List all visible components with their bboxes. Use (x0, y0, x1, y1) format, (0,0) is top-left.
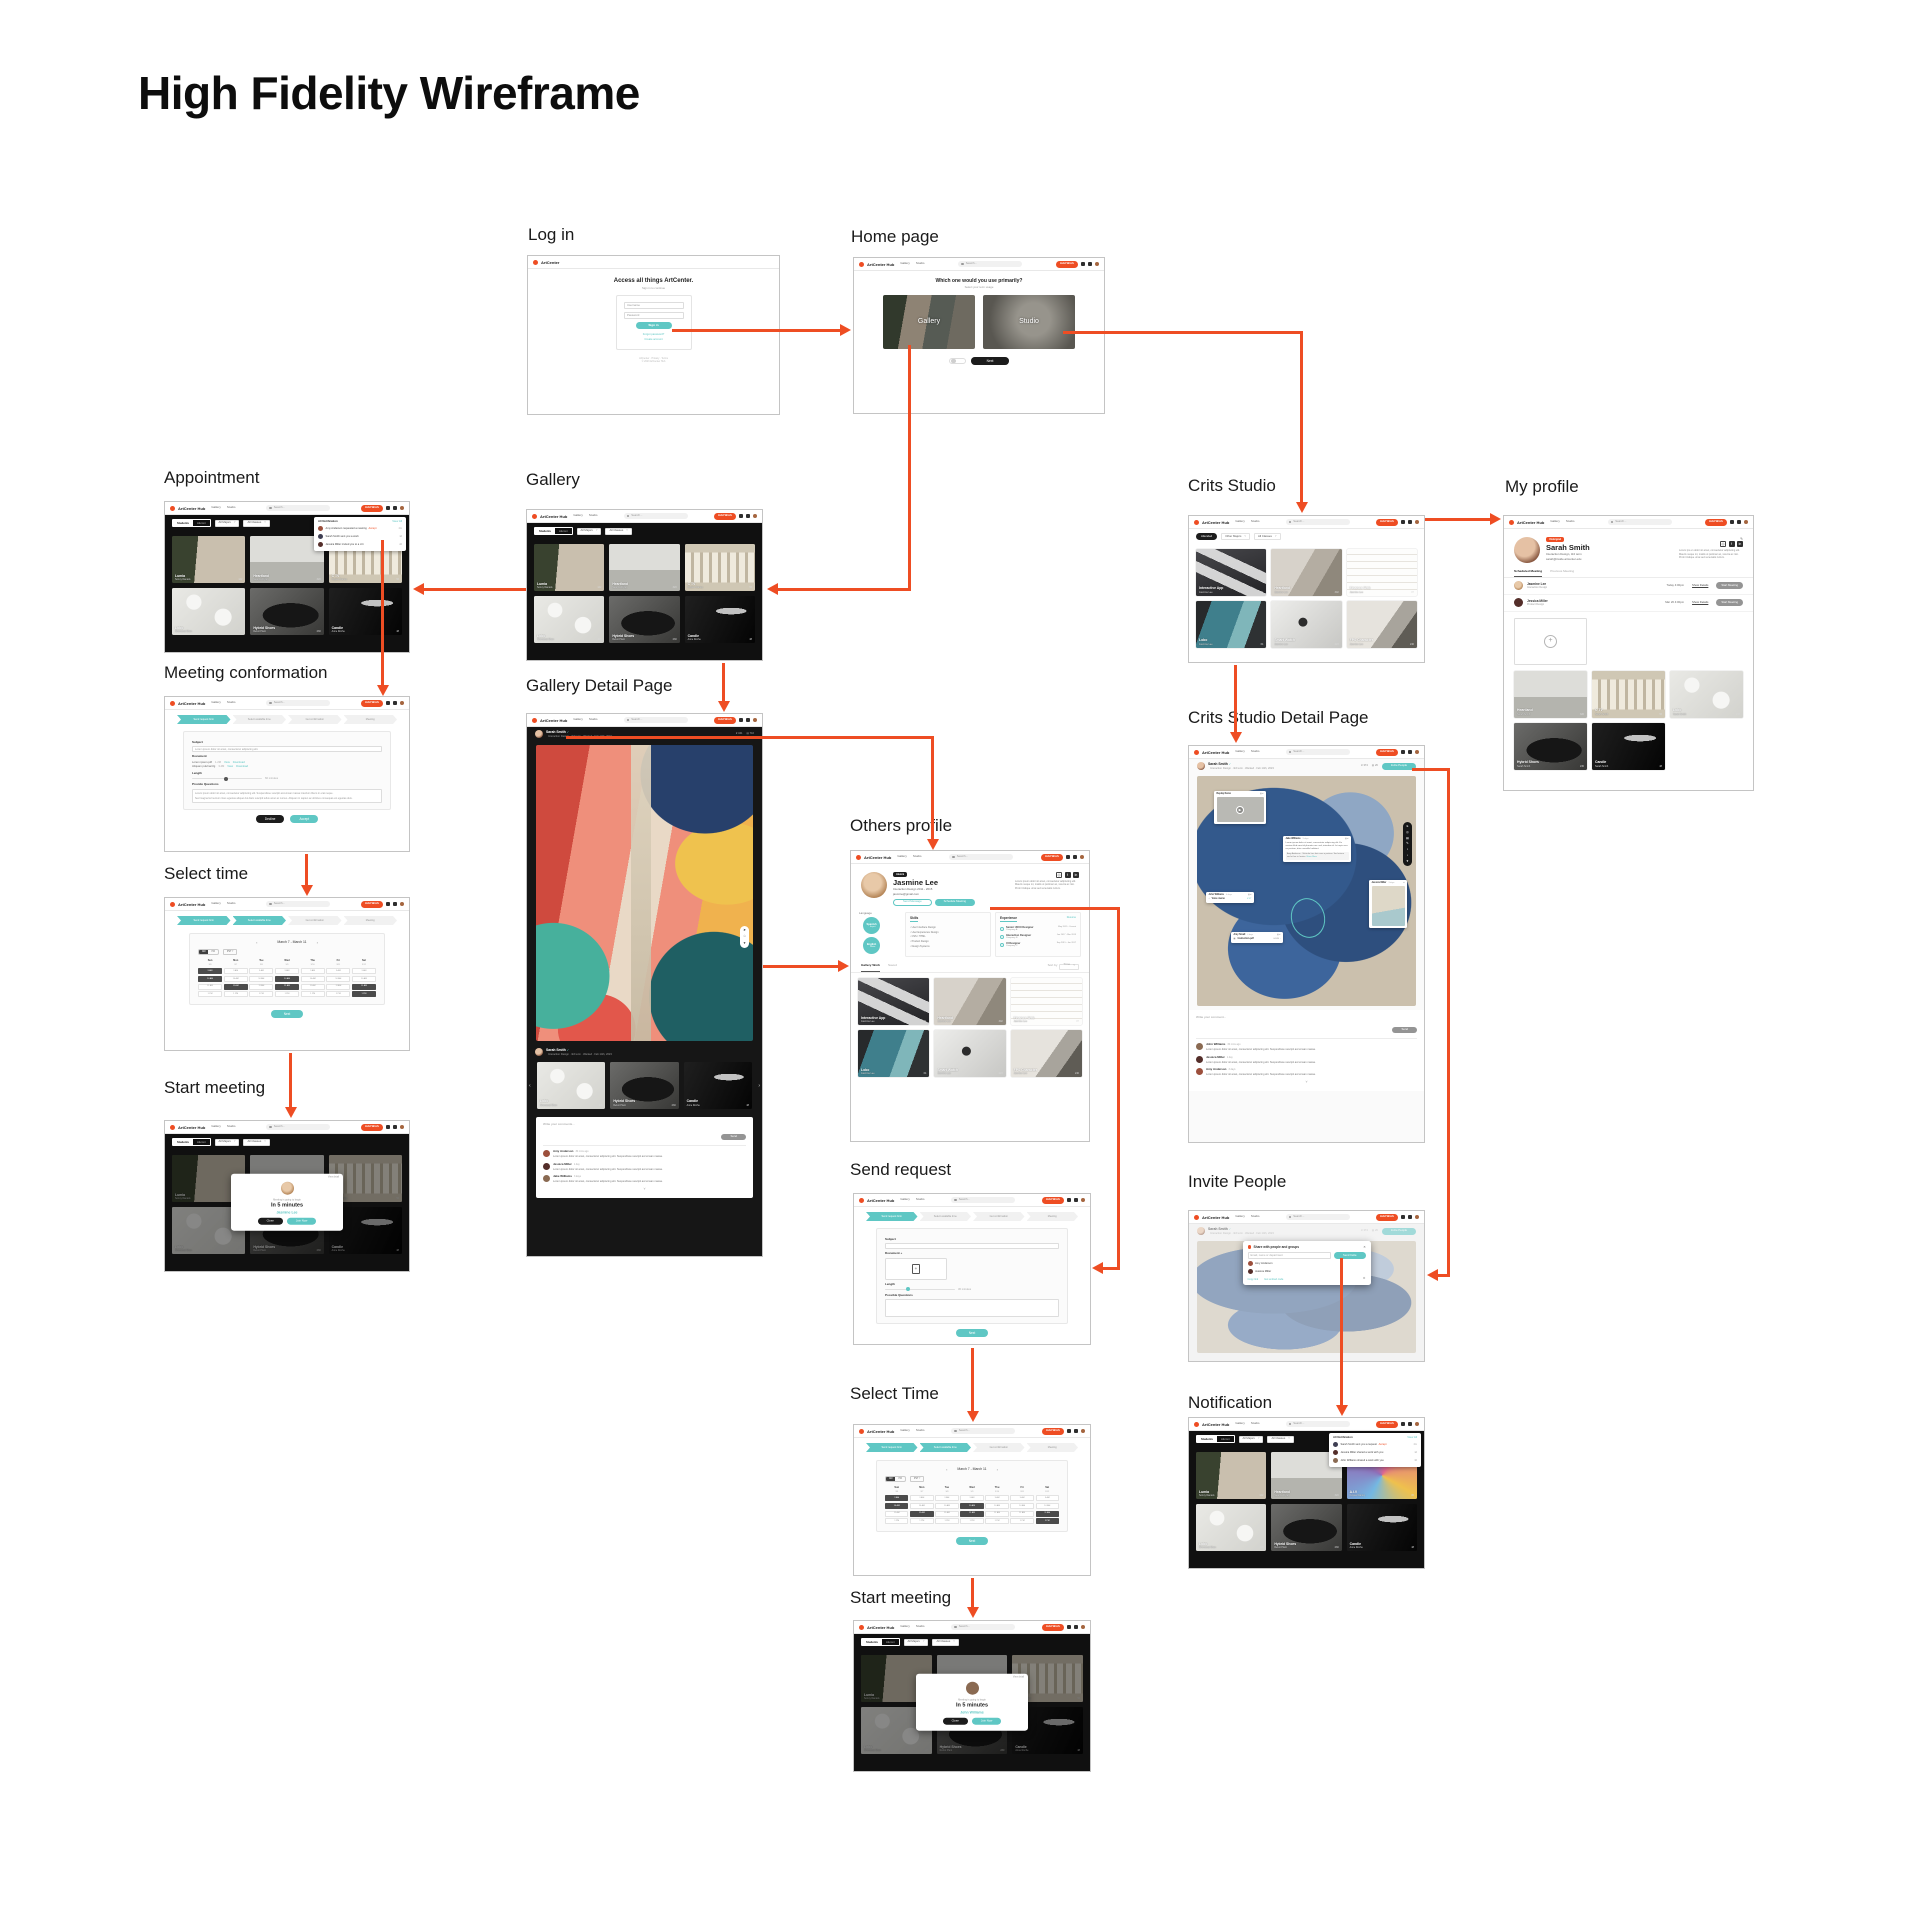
nav-gallery[interactable]: Gallery (1235, 520, 1245, 524)
instagram-icon[interactable]: ◎ (1056, 872, 1062, 878)
add-work-button[interactable]: Add Work (1376, 1214, 1398, 1221)
send-message-button[interactable]: Send Message (893, 899, 932, 906)
bell-icon[interactable] (386, 506, 390, 510)
search-input[interactable]: Search... (266, 700, 330, 706)
time-slot[interactable]: 9 AM (935, 1495, 959, 1501)
bell-icon[interactable] (1067, 1198, 1071, 1202)
artwork-card[interactable]: Heartland Jasmine Lee 302 (934, 978, 1005, 1025)
chat-icon[interactable] (393, 902, 397, 906)
invite-person-row[interactable]: Amy Anderson (1248, 1261, 1366, 1266)
time-slot[interactable]: 11 AM (352, 984, 376, 990)
add-work-button[interactable]: Add Work (1376, 1421, 1398, 1428)
nav-studio[interactable]: Studio (916, 1625, 925, 1629)
time-slot[interactable]: 9 AM (960, 1495, 983, 1501)
like-icon[interactable]: ♥ (743, 942, 745, 945)
questions-textarea[interactable]: Lorem ipsum dolor sit amet, consectetur … (192, 789, 382, 803)
facebook-icon[interactable]: f (1729, 541, 1735, 547)
search-input[interactable]: Search... (266, 505, 330, 511)
time-slot[interactable]: 10 AM (198, 976, 222, 982)
nav-gallery[interactable]: Gallery (1550, 520, 1560, 524)
avatar[interactable] (1080, 855, 1084, 859)
artwork-card[interactable]: Finance Web Jasmine Lee 87 (1011, 978, 1082, 1025)
time-slot[interactable]: 11 AM (224, 984, 248, 990)
share-icon[interactable]: ➤ (1406, 825, 1409, 828)
next-button[interactable]: Next (271, 1010, 303, 1018)
artwork-card[interactable]: Lumia Sonny Daniels 142 (172, 536, 245, 583)
bell-icon[interactable] (386, 701, 390, 705)
classes-dropdown[interactable]: All Classes˅ (1254, 533, 1280, 540)
send-button[interactable]: Send (1392, 1027, 1417, 1034)
artwork-card[interactable]: Hybrid Shoes Rebot Plant 230 (250, 588, 323, 635)
artwork-card[interactable]: FPS Character Jasmine Lee 240 (1347, 601, 1417, 648)
search-input[interactable]: Search... (949, 854, 1013, 860)
nav-studio[interactable]: Studio (1251, 520, 1260, 524)
majors-dropdown[interactable]: All Majors˅ (1239, 1436, 1264, 1443)
nav-gallery[interactable]: Gallery (900, 1429, 910, 1433)
time-slot[interactable]: 1 PM (910, 1518, 933, 1524)
add-work-tile[interactable]: + (1514, 618, 1587, 665)
artwork-card[interactable]: Hybrid Shoes Rebot Plant 230 (610, 1062, 678, 1109)
nav-gallery[interactable]: Gallery (1235, 1422, 1245, 1426)
send-invite-button[interactable]: Send Invite (1334, 1252, 1365, 1259)
time-slot[interactable]: 1 PM (1036, 1518, 1060, 1524)
artwork-card[interactable]: Candle Sarah Smith 48 (1592, 723, 1665, 770)
next-button[interactable]: Next (971, 357, 1009, 365)
chat-icon[interactable] (746, 514, 750, 518)
download-icon[interactable]: ↓ (1407, 854, 1409, 857)
bell-icon[interactable] (386, 1125, 390, 1129)
artwork-card[interactable]: Candle Anne Roche 48 (685, 596, 755, 643)
add-work-button[interactable]: Add Work (361, 700, 383, 707)
search-input[interactable]: Search... (951, 1428, 1015, 1434)
add-work-button[interactable]: Add Work (361, 901, 383, 908)
nav-studio[interactable]: Studio (1251, 750, 1260, 754)
week-next-icon[interactable]: › (997, 1467, 998, 1472)
classes-dropdown[interactable]: All Classes˅ (605, 528, 631, 535)
classes-dropdown[interactable]: All Classes˅ (1267, 1436, 1293, 1443)
username-field[interactable]: Username (624, 302, 684, 309)
forgot-password-link[interactable]: Forgot password? (643, 333, 665, 336)
nav-gallery[interactable]: Gallery (211, 701, 221, 705)
nav-studio[interactable]: Studio (1251, 1215, 1260, 1219)
schedule-meeting-button[interactable]: Schedule Meeting (935, 899, 975, 906)
nav-gallery[interactable]: Gallery (211, 1125, 221, 1129)
audience-toggle[interactable]: StudentsAlumni (172, 1138, 211, 1146)
pen-icon[interactable]: ✎ (1406, 842, 1409, 845)
time-slot[interactable]: 1 PM (198, 991, 222, 997)
view-all-link[interactable]: View All (392, 520, 402, 523)
bell-icon[interactable] (1067, 1429, 1071, 1433)
time-slot[interactable]: 9 AM (224, 968, 248, 974)
chat-icon[interactable] (1088, 262, 1092, 266)
time-slot[interactable]: 10 AM (326, 976, 350, 982)
star-icon[interactable]: ☆ (743, 935, 746, 938)
avatar[interactable] (753, 718, 757, 722)
password-field[interactable]: Password (624, 312, 684, 319)
search-input[interactable]: Search... (624, 717, 688, 723)
time-slot[interactable]: 9 AM (1036, 1495, 1060, 1501)
add-work-button[interactable]: Add Work (1042, 1428, 1064, 1435)
bell-icon[interactable] (386, 902, 390, 906)
time-slot[interactable]: 11 AM (935, 1511, 959, 1517)
notification-row[interactable]: Jessica Miller invited you to a crit 2d (318, 542, 402, 547)
comment-input[interactable]: Write your comment... (1196, 1016, 1417, 1020)
artwork-card[interactable]: Lobo Jasmine Lee 64 (858, 1030, 929, 1077)
majors-dropdown[interactable]: Other Majors˅ (1221, 533, 1250, 540)
next-button[interactable]: Next (956, 1329, 988, 1337)
artwork-card[interactable]: Smart Watch Jasmine Lee 223 (934, 1030, 1005, 1077)
voice-annotation[interactable]: John Williams4 days▤ ♥ ♪Voice memo4'32'' (1206, 892, 1254, 903)
time-slot[interactable]: 11 AM (301, 984, 325, 990)
time-slot[interactable]: 9 AM (985, 1495, 1009, 1501)
add-work-button[interactable]: Add Work (1376, 519, 1398, 526)
avatar[interactable] (1415, 1422, 1419, 1426)
time-slot[interactable]: 9 AM (910, 1495, 933, 1501)
join-now-button[interactable]: Join Now (972, 1718, 1002, 1725)
home-card-studio[interactable]: Studio (983, 295, 1075, 349)
time-slot[interactable]: 11 AM (1036, 1511, 1060, 1517)
copy-link[interactable]: Copy link (1248, 1278, 1259, 1281)
artwork-card[interactable]: Finance Web Jasmine Lee 87 (1347, 549, 1417, 596)
time-slot[interactable]: 9 AM (275, 968, 299, 974)
time-slot[interactable]: 9 AM (1010, 1495, 1033, 1501)
week-prev-icon[interactable]: ‹ (946, 1467, 947, 1472)
download-link[interactable]: Download (233, 761, 245, 764)
time-slot[interactable]: 9 AM (885, 1495, 908, 1501)
eye-icon[interactable]: ◎ (1406, 831, 1409, 834)
artwork-card[interactable]: C TV Kaylee Danley 56 (685, 544, 755, 591)
time-slot[interactable]: 9 AM (326, 968, 350, 974)
time-slot[interactable]: 11 AM (885, 1511, 908, 1517)
artwork-card[interactable]: Heartland Jasmine Lee 302 (1271, 549, 1341, 596)
search-input[interactable]: Search... (1286, 1421, 1350, 1427)
file-annotation[interactable]: Amy Small4 days▤ ♥ ▦Instruction.pdf64 KB… (1231, 932, 1283, 943)
majors-dropdown[interactable]: All Majors˅ (215, 520, 240, 527)
subject-input[interactable] (885, 1243, 1059, 1249)
time-slot[interactable]: 11 AM (275, 984, 299, 990)
time-slot[interactable]: 1 PM (275, 991, 299, 997)
close-button[interactable]: Close (943, 1718, 968, 1725)
view-link[interactable]: View (224, 761, 230, 764)
artwork-card[interactable]: Smart Watch Jasmine Lee 223 (1271, 601, 1341, 648)
chat-icon[interactable] (1073, 855, 1077, 859)
classes-dropdown[interactable]: All Classes˅ (243, 1139, 269, 1146)
avatar[interactable] (1081, 1625, 1085, 1629)
nav-studio[interactable]: Studio (227, 506, 236, 510)
chat-icon[interactable] (1408, 1422, 1412, 1426)
length-slider[interactable] (192, 778, 262, 779)
subject-input[interactable]: Lorem ipsum dolor sit amet, consectetur … (192, 746, 382, 752)
nav-gallery[interactable]: Gallery (900, 262, 910, 266)
nav-studio[interactable]: Studio (1566, 520, 1575, 524)
search-input[interactable]: Search... (1608, 519, 1672, 525)
search-input[interactable]: Search... (958, 261, 1022, 267)
avatar[interactable] (400, 902, 404, 906)
bell-icon[interactable] (1081, 262, 1085, 266)
bell-icon[interactable] (1401, 1422, 1405, 1426)
ampm-toggle[interactable]: AMPM (885, 1476, 906, 1482)
avatar[interactable] (1081, 1198, 1085, 1202)
search-input[interactable]: Search... (266, 1124, 330, 1130)
bell-icon[interactable] (1067, 1625, 1071, 1629)
decline-button[interactable]: Decline (256, 815, 285, 823)
nav-gallery[interactable]: Gallery (573, 514, 583, 518)
artwork-card[interactable]: Lobo Sarah Smith 105 (1670, 671, 1743, 718)
audio-icon[interactable]: ♪ (1407, 848, 1409, 851)
close-icon[interactable]: × (1363, 1245, 1365, 1249)
home-card-gallery[interactable]: Gallery (883, 295, 975, 349)
comment-icon[interactable]: ▤ (1406, 837, 1409, 840)
chat-icon[interactable] (746, 718, 750, 722)
expand-comments-icon[interactable]: ˅ (543, 1187, 746, 1191)
carousel-next-icon[interactable]: › (758, 1083, 760, 1089)
time-slot[interactable]: 9 AM (352, 968, 376, 974)
artwork-card[interactable]: Interactive App Jasmine Lee 41 (1196, 549, 1266, 596)
search-input[interactable]: Search... (266, 901, 330, 907)
artwork-card[interactable]: Lobo Sherwood Shen 105 (172, 588, 245, 635)
notification-row[interactable]: Amy Anderson requested a meeting Accept … (318, 526, 402, 531)
play-icon[interactable]: ▶ (1236, 806, 1244, 814)
add-work-button[interactable]: Add Work (714, 717, 736, 724)
artwork-card[interactable]: Interactive App Jasmine Lee 41 (858, 978, 929, 1025)
artwork-card[interactable]: Lobo Sherwood Shen 105 (534, 596, 604, 643)
time-slot[interactable]: 1 PM (1010, 1518, 1033, 1524)
view-detail-link[interactable]: View detail (1013, 1677, 1024, 1680)
add-work-button[interactable]: Add Work (1376, 749, 1398, 756)
add-work-button[interactable]: Add Work (1041, 854, 1063, 861)
week-next-icon[interactable]: › (317, 940, 318, 945)
time-slot[interactable]: 11 AM (960, 1511, 983, 1517)
invite-input[interactable]: Email, name or department (1248, 1252, 1332, 1259)
invite-people-button[interactable]: Invite People (1382, 763, 1416, 770)
avatar[interactable] (1095, 262, 1099, 266)
notification-row[interactable]: Sarah Smith sent you a request Accept 2m (1333, 1442, 1417, 1447)
audience-toggle[interactable]: StudentsAlumni (1196, 1435, 1235, 1443)
time-slot[interactable]: 10 AM (224, 976, 248, 982)
nav-studio[interactable]: Studio (227, 701, 236, 705)
like-icon[interactable]: ♥ 374 (1361, 764, 1368, 767)
audience-toggle[interactable]: StudentsAlumni (172, 519, 211, 527)
avatar[interactable] (1415, 1215, 1419, 1219)
add-work-button[interactable]: Add Work (1056, 261, 1078, 268)
time-slot[interactable]: 1 PM (249, 991, 273, 997)
time-slot[interactable]: 11 AM (985, 1511, 1009, 1517)
notification-row[interactable]: Jessica Miller shared a work with you 1d (1333, 1450, 1417, 1455)
nav-studio[interactable]: Studio (913, 855, 922, 859)
time-slot[interactable]: 11 AM (326, 984, 350, 990)
avatar[interactable] (400, 1125, 404, 1129)
bell-icon[interactable] (1730, 520, 1734, 524)
like-icon[interactable]: ♥ (1407, 860, 1409, 863)
time-slot[interactable]: 10 AM (301, 976, 325, 982)
time-slot[interactable]: 11 AM (198, 984, 222, 990)
bell-icon[interactable] (1401, 520, 1405, 524)
toggle-pill[interactable] (949, 358, 966, 365)
time-slot[interactable]: 11 AM (1010, 1511, 1033, 1517)
resume-link[interactable]: Resume (1067, 916, 1076, 919)
add-work-button[interactable]: Add Work (1042, 1624, 1064, 1631)
gear-icon[interactable]: ⚙ (1363, 1277, 1366, 1281)
attended-filter[interactable]: Attended (1196, 533, 1217, 540)
audience-toggle[interactable]: StudentsAlumni (861, 1638, 900, 1646)
artwork-card[interactable]: Candle Anne Roche 48 (684, 1062, 752, 1109)
time-slot[interactable]: 10 AM (1010, 1503, 1033, 1509)
chat-icon[interactable] (393, 1125, 397, 1129)
artwork-card[interactable]: Lumia Sonny Daniels 142 (1196, 1452, 1266, 1499)
nav-studio[interactable]: Studio (227, 902, 236, 906)
bell-icon[interactable] (1066, 855, 1070, 859)
view-all-link[interactable]: View All (1407, 1436, 1417, 1439)
add-work-button[interactable]: Add Work (361, 505, 383, 512)
artwork-card[interactable]: Lobo Jasmine Lee 64 (1196, 601, 1266, 648)
time-slot[interactable]: 10 AM (910, 1503, 933, 1509)
artwork-card[interactable]: Heartland Sarah Smith 320 (1514, 671, 1587, 718)
nav-gallery[interactable]: Gallery (900, 1198, 910, 1202)
artwork-card[interactable]: FPS Character Jasmine Lee 240 (1011, 1030, 1082, 1077)
linkedin-icon[interactable]: in (1073, 872, 1079, 878)
add-work-button[interactable]: Add Work (1042, 1197, 1064, 1204)
artwork-card[interactable]: Lobo Sherwood Shen 105 (537, 1062, 605, 1109)
expand-comments-icon[interactable]: ˅ (1196, 1080, 1417, 1084)
nav-studio[interactable]: Studio (916, 262, 925, 266)
artwork-card[interactable]: Candle Anne Roche 48 (1347, 1504, 1417, 1551)
join-now-button[interactable]: Join Now (287, 1218, 317, 1225)
send-button[interactable]: Send (721, 1134, 746, 1141)
nav-gallery[interactable]: Gallery (211, 902, 221, 906)
view-link[interactable]: View (227, 765, 233, 768)
show-details-link[interactable]: Show Details (1692, 584, 1708, 587)
close-button[interactable]: Close (258, 1218, 283, 1225)
time-slot[interactable]: 10 AM (249, 976, 273, 982)
document-upload[interactable]: + (885, 1258, 947, 1280)
time-slot[interactable]: 10 AM (352, 976, 376, 982)
linkedin-icon[interactable]: in (1737, 541, 1743, 547)
nav-gallery[interactable]: Gallery (573, 718, 583, 722)
instagram-icon[interactable]: ◎ (1720, 541, 1726, 547)
time-slot[interactable]: 1 PM (326, 991, 350, 997)
share-icon[interactable]: ➤ (743, 929, 746, 932)
time-slot[interactable]: 1 PM (885, 1518, 908, 1524)
search-input[interactable]: Search... (951, 1624, 1015, 1630)
chat-icon[interactable] (1074, 1625, 1078, 1629)
avatar[interactable] (400, 506, 404, 510)
artwork-card[interactable]: Hybrid Shoes Rebot Plant 230 (1271, 1504, 1341, 1551)
tab-previous-meeting[interactable]: Previous Meeting (1550, 570, 1574, 577)
time-slot[interactable]: 10 AM (960, 1503, 983, 1509)
search-input[interactable]: Search... (951, 1197, 1015, 1203)
bell-icon[interactable] (1401, 750, 1405, 754)
view-detail-link[interactable]: View detail (328, 1177, 339, 1180)
show-details-link[interactable]: Show Details (1692, 601, 1708, 604)
chat-icon[interactable] (1074, 1198, 1078, 1202)
week-prev-icon[interactable]: ‹ (256, 940, 257, 945)
majors-dropdown[interactable]: All Majors˅ (904, 1639, 929, 1646)
time-slot[interactable]: 10 AM (275, 976, 299, 982)
avatar[interactable] (753, 514, 757, 518)
time-slot[interactable]: 9 AM (301, 968, 325, 974)
questions-textarea[interactable] (885, 1299, 1059, 1317)
avatar[interactable] (1744, 520, 1748, 524)
time-slot[interactable]: 10 AM (985, 1503, 1009, 1509)
facebook-icon[interactable]: f (1065, 872, 1071, 878)
chat-icon[interactable] (1408, 750, 1412, 754)
timezone-dropdown[interactable]: PST ˅ (910, 1476, 924, 1482)
time-slot[interactable]: 10 AM (1036, 1503, 1060, 1509)
invite-person-row[interactable]: Jessica Miller (1248, 1269, 1366, 1274)
ampm-toggle[interactable]: AMPM (198, 949, 219, 955)
artwork-card[interactable]: Heartland Seanna Dylan 320 (250, 536, 323, 583)
artwork-card[interactable]: Lumia Sonny Daniels 142 (534, 544, 604, 591)
chat-icon[interactable] (393, 506, 397, 510)
avatar[interactable] (400, 701, 404, 705)
carousel-prev-icon[interactable]: ‹ (529, 1083, 531, 1089)
nav-gallery[interactable]: Gallery (1235, 750, 1245, 754)
search-input[interactable]: Search... (624, 513, 688, 519)
search-input[interactable]: Search... (1286, 749, 1350, 755)
time-slot[interactable]: 1 PM (301, 991, 325, 997)
nav-studio[interactable]: Studio (589, 514, 598, 518)
time-slot[interactable]: 10 AM (935, 1503, 959, 1509)
artwork-card[interactable]: Candle Anne Roche 48 (329, 588, 402, 635)
add-work-button[interactable]: Add Work (714, 513, 736, 520)
nav-studio[interactable]: Studio (916, 1429, 925, 1433)
tab-saved[interactable]: Saved (888, 964, 897, 972)
next-button[interactable]: Next (956, 1537, 988, 1545)
add-work-button[interactable]: Add Work (1705, 519, 1727, 526)
classes-dropdown[interactable]: All Classes˅ (243, 520, 269, 527)
image-annotation[interactable]: Jessica Miller3 days♥ (1369, 880, 1407, 928)
audience-toggle[interactable]: StudentsAlumni (534, 527, 573, 535)
time-slot[interactable]: 1 PM (224, 991, 248, 997)
avatar[interactable] (1415, 520, 1419, 524)
notification-row[interactable]: John Williams shared a work with you 3d (1333, 1458, 1417, 1463)
time-slot[interactable]: 11 AM (249, 984, 273, 990)
start-meeting-button[interactable]: Start Meeting (1716, 582, 1743, 589)
majors-dropdown[interactable]: All Majors˅ (577, 528, 602, 535)
length-slider[interactable] (885, 1289, 955, 1290)
avatar[interactable] (1415, 750, 1419, 754)
chat-icon[interactable] (1737, 520, 1741, 524)
comment-input[interactable]: Write your comments... (543, 1123, 746, 1127)
time-slot[interactable]: 1 PM (352, 991, 376, 997)
nav-gallery[interactable]: Gallery (1235, 1215, 1245, 1219)
artwork-card[interactable]: Lobo Sherwood Shen 105 (1196, 1504, 1266, 1551)
nav-gallery[interactable]: Gallery (211, 506, 221, 510)
bell-icon[interactable] (739, 718, 743, 722)
artwork-card[interactable]: C TV Sarah Smith 56 (1592, 671, 1665, 718)
chat-icon[interactable] (1074, 1429, 1078, 1433)
artwork-card[interactable]: Heartland Seanna Dylan 320 (609, 544, 679, 591)
time-slot[interactable]: 1 PM (985, 1518, 1009, 1524)
bell-icon[interactable] (739, 514, 743, 518)
timezone-dropdown[interactable]: PST ˅ (223, 949, 237, 955)
nav-studio[interactable]: Studio (1251, 1422, 1260, 1426)
artwork-card[interactable]: Hybrid Shoes Rebot Plant 230 (609, 596, 679, 643)
time-slot[interactable]: 9 AM (249, 968, 273, 974)
tab-gallery-work[interactable]: Gallery Work (861, 964, 880, 972)
artwork-card[interactable]: Hybrid Shoes Sarah Smith 230 (1514, 723, 1587, 770)
nav-studio[interactable]: Studio (916, 1198, 925, 1202)
accept-button[interactable]: Accept (290, 815, 318, 823)
sort-dropdown[interactable]: Time˅ (1059, 964, 1079, 970)
video-annotation[interactable]: Replay Demo▤ ♥ ▶ (1214, 791, 1266, 824)
signin-button[interactable]: Sign in (636, 322, 672, 329)
start-meeting-button[interactable]: Start Meeting (1716, 599, 1743, 606)
nav-gallery[interactable]: Gallery (900, 1625, 910, 1629)
classes-dropdown[interactable]: All Classes˅ (932, 1639, 958, 1646)
download-link[interactable]: Download (236, 765, 248, 768)
nav-studio[interactable]: Studio (589, 718, 598, 722)
